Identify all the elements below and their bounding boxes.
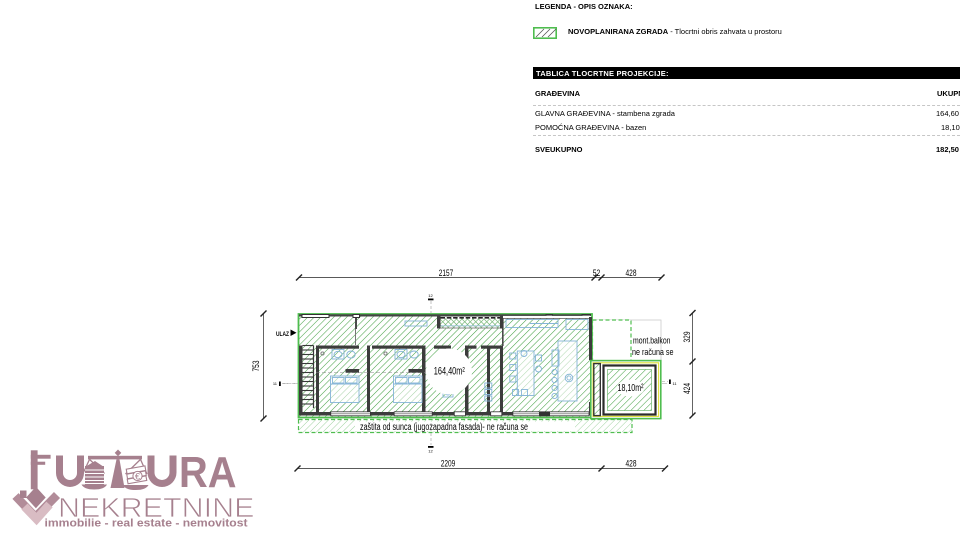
svg-text:zaštita od sunca (jugozapadna: zaštita od sunca (jugozapadna fasada)- n… <box>360 422 528 433</box>
svg-text:ne računa se: ne računa se <box>632 347 674 357</box>
svg-text:11: 11 <box>273 381 278 386</box>
svg-text:€: € <box>135 472 140 482</box>
svg-text:11: 11 <box>673 381 678 386</box>
svg-text:mont.balkon: mont.balkon <box>633 336 671 346</box>
svg-text:428: 428 <box>626 268 637 279</box>
svg-text:424: 424 <box>682 383 693 394</box>
svg-text:18,10m²: 18,10m² <box>618 383 644 394</box>
svg-text:immobilie - real estate - nemo: immobilie - real estate - nemovitost <box>45 518 248 530</box>
svg-text:52: 52 <box>593 268 601 279</box>
svg-text:RA: RA <box>179 448 237 497</box>
svg-text:2209: 2209 <box>441 459 456 470</box>
svg-text:329: 329 <box>682 332 693 343</box>
svg-text:12: 12 <box>428 449 433 454</box>
svg-text:ULAZ: ULAZ <box>276 331 289 338</box>
svg-text:2157: 2157 <box>439 268 454 279</box>
svg-text:12: 12 <box>428 293 433 298</box>
svg-text:753: 753 <box>251 361 262 372</box>
svg-text:164,40m²: 164,40m² <box>434 366 465 378</box>
svg-text:428: 428 <box>626 459 637 470</box>
